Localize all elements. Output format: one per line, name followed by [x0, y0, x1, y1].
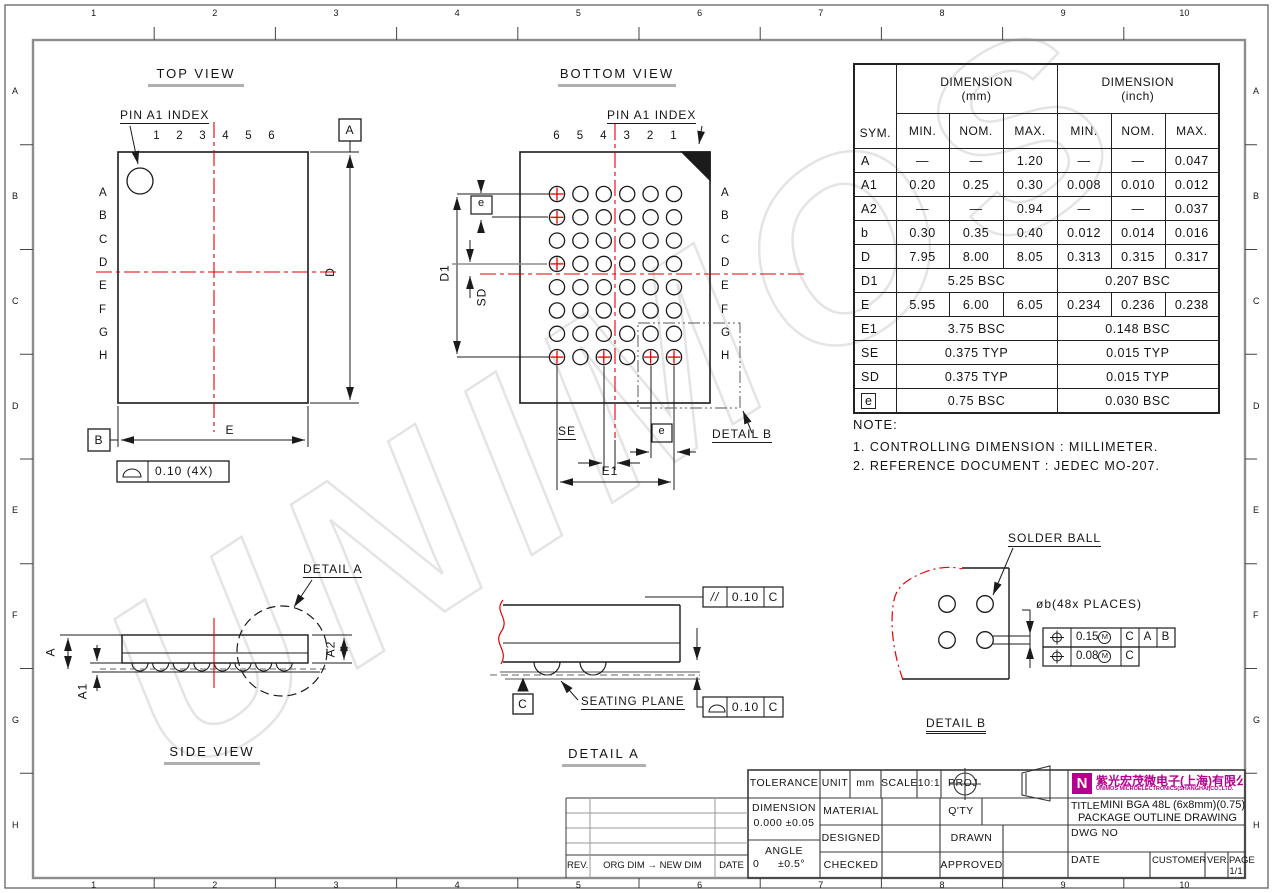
proj-label: PROJ: [948, 777, 978, 789]
parallelism-symbol: //: [703, 590, 727, 604]
bottom-view-row-letter: D: [721, 257, 730, 269]
inch-span-cell: 0.148 BSC: [1057, 317, 1219, 341]
inch-cell: 0.238: [1165, 293, 1219, 317]
bottom-view-column-number: 2: [646, 130, 656, 142]
unit-label: UNIT: [820, 777, 850, 789]
dim-d-label: D: [323, 267, 337, 277]
solder-ball: [596, 210, 611, 225]
dim-d1-label: D1: [438, 264, 452, 281]
col-header-inch: DIMENSION(inch): [1057, 64, 1219, 114]
inch-cell: 0.313: [1057, 245, 1111, 269]
zone-column-label: 5: [573, 8, 583, 18]
zone-column-label: 2: [210, 8, 220, 18]
inch-cell: 0.008: [1057, 173, 1111, 197]
page-value: 1/1: [1228, 866, 1244, 877]
dim-a1-label: A1: [75, 683, 89, 700]
zone-column-label: 8: [937, 8, 947, 18]
ball-position-cross: [551, 211, 564, 224]
side-view-title: SIDE VIEW: [164, 744, 260, 765]
mm-cell: 6.00: [949, 293, 1003, 317]
bottom-view-row-letter: A: [721, 187, 730, 199]
material-modifier-icon: M: [1098, 631, 1111, 644]
datum-c-triangle: [518, 679, 528, 691]
qty-label: Q'TY: [940, 805, 982, 817]
mm-cell: 5.95: [896, 293, 949, 317]
mm-span-cell: 0.375 TYP: [896, 341, 1057, 365]
mm-cell: —: [896, 149, 949, 173]
solder-ball: [620, 186, 635, 201]
dim-e-label: E: [205, 423, 255, 437]
dim-se-label: SE: [558, 424, 576, 440]
detail-b-callout-label: DETAIL B: [712, 427, 772, 443]
mm-cell: 0.35: [949, 221, 1003, 245]
sym-cell: A1: [854, 173, 896, 197]
table-row: D15.25 BSC0.207 BSC: [854, 269, 1219, 293]
zone-row-label: B: [1253, 191, 1259, 201]
designed-label: DESIGNED: [820, 832, 882, 844]
drawn-label: DRAWN: [940, 832, 1003, 844]
inch-cell: —: [1111, 197, 1165, 221]
dimension-label: DIMENSION: [748, 802, 820, 814]
zone-row-label: F: [1253, 610, 1259, 620]
top-view-row-letter: D: [99, 257, 108, 269]
angle-label: ANGLE: [748, 845, 820, 857]
dimension-table: SYM. DIMENSION(mm) DIMENSION(inch)MIN.NO…: [853, 63, 1220, 414]
bottom-view-pin-a1-label: PIN A1 INDEX: [607, 108, 696, 124]
drawing-title-line1: MINI BGA 48L (6x8mm)(0.75): [1100, 799, 1245, 811]
bottom-view-column-number: 6: [552, 130, 562, 142]
zone-column-label: 1: [89, 880, 99, 890]
inch-cell: 0.016: [1165, 221, 1219, 245]
solder-ball: [573, 210, 588, 225]
ball-diameter-note: øb(48x PLACES): [1036, 597, 1142, 611]
parallelism-tolerance: 0.10: [727, 590, 764, 604]
top-view-centerlines: [96, 122, 340, 432]
inch-cell: —: [1057, 149, 1111, 173]
mm-cell: 0.30: [1003, 173, 1057, 197]
table-row: E13.75 BSC0.148 BSC: [854, 317, 1219, 341]
dim-a-label: A: [44, 647, 58, 656]
zone-column-label: 6: [695, 880, 705, 890]
pin-a1-index-circle: [127, 168, 153, 194]
date-label: DATE: [1071, 854, 1100, 866]
zone-row-label: H: [12, 820, 19, 830]
col-subheader: MAX.: [1165, 114, 1219, 149]
flatness-value: 0.10 (4X): [155, 464, 213, 478]
fcf-datum: B: [1157, 631, 1175, 643]
company-name-en: UNIMOS MICROELECTRONICS(SHANGHAI)CO.,LTD…: [1096, 786, 1243, 792]
sym-cell: A2: [854, 197, 896, 221]
solder-ball: [573, 186, 588, 201]
fcf-row1-tolerance: 0.15M: [1076, 631, 1111, 644]
bottom-view-column-number: 4: [599, 130, 609, 142]
zone-column-label: 7: [816, 8, 826, 18]
zone-row-label: B: [12, 191, 18, 201]
title-label: TITLE: [1071, 800, 1100, 812]
sym-cell: D1: [854, 269, 896, 293]
table-row: SE0.375 TYP0.015 TYP: [854, 341, 1219, 365]
fcf-tol-value: 0.15: [1076, 631, 1098, 643]
fcf-datum: A: [1139, 631, 1157, 643]
inch-cell: 0.047: [1165, 149, 1219, 173]
sym-cell: E1: [854, 317, 896, 341]
dwg-no-label: DWG NO: [1071, 827, 1118, 839]
table-row: A2——0.94——0.037: [854, 197, 1219, 221]
mm-cell: 7.95: [896, 245, 949, 269]
mm-span-cell: 0.375 TYP: [896, 365, 1057, 389]
fcf-datum: C: [1121, 631, 1139, 643]
zone-column-label: 9: [1058, 880, 1068, 890]
inch-cell: 0.037: [1165, 197, 1219, 221]
zone-column-label: 3: [331, 880, 341, 890]
zone-column-label: 10: [1179, 880, 1189, 890]
break-boundary: [892, 567, 962, 680]
mm-cell: 8.00: [949, 245, 1003, 269]
zone-column-label: 2: [210, 880, 220, 890]
detail-b-body: [892, 567, 1009, 680]
zone-row-label: C: [1253, 296, 1260, 306]
profile-symbol-icon: [123, 469, 141, 477]
mm-cell: —: [896, 197, 949, 221]
zone-row-label: D: [12, 401, 19, 411]
zone-row-label: D: [1253, 401, 1260, 411]
mm-span-cell: 5.25 BSC: [896, 269, 1057, 293]
mm-cell: —: [949, 149, 1003, 173]
mm-cell: 0.30: [896, 221, 949, 245]
col-subheader: MIN.: [1057, 114, 1111, 149]
col-subheader: NOM.: [1111, 114, 1165, 149]
top-view-column-number: 4: [221, 130, 231, 142]
ver-label: VER.: [1207, 855, 1229, 866]
zone-column-label: 9: [1058, 8, 1068, 18]
dimension-tolerance: 0.000 ±0.05: [748, 817, 820, 829]
mm-cell: —: [949, 197, 1003, 221]
mm-cell: 8.05: [1003, 245, 1057, 269]
table-row: SD0.375 TYP0.015 TYP: [854, 365, 1219, 389]
mm-cell: 6.05: [1003, 293, 1057, 317]
zone-row-label: E: [1253, 505, 1259, 515]
col-subheader: MIN.: [896, 114, 949, 149]
bottom-view-row-letter: E: [721, 280, 730, 292]
table-row: D7.958.008.050.3130.3150.317: [854, 245, 1219, 269]
note-item: 2. REFERENCE DOCUMENT : JEDEC MO-207.: [853, 459, 1160, 473]
checked-label: CHECKED: [820, 859, 882, 871]
drawing-sheet: UNIMOS: [0, 0, 1273, 893]
top-view-row-letter: B: [99, 210, 108, 222]
inch-span-cell: 0.030 BSC: [1057, 389, 1219, 414]
table-row: A10.200.250.300.0080.0100.012: [854, 173, 1219, 197]
parallelism-datum: C: [764, 590, 783, 604]
page-label: PAGE: [1229, 855, 1255, 866]
approved-label: APPROVED: [940, 859, 1003, 871]
material-label: MATERIAL: [820, 805, 882, 817]
seating-plane-label: SEATING PLANE: [581, 696, 685, 710]
inch-cell: 0.012: [1165, 173, 1219, 197]
profile-symbol-icon: [709, 705, 725, 712]
pitch-e-label-bottom: e: [652, 425, 672, 437]
bottom-view-column-number: 5: [575, 130, 585, 142]
material-modifier-icon: M: [1098, 650, 1111, 663]
fcf-tol-value: 0.08: [1076, 650, 1098, 662]
bottom-view-row-letter: H: [721, 350, 730, 362]
zone-row-label: G: [12, 715, 19, 725]
top-view-row-letter: H: [99, 350, 108, 362]
zone-column-label: 8: [937, 880, 947, 890]
col-subheader: MAX.: [1003, 114, 1057, 149]
mm-span-cell: 3.75 BSC: [896, 317, 1057, 341]
top-view-row-letter: E: [99, 280, 108, 292]
bottom-view-row-letter: F: [721, 304, 729, 316]
zone-column-label: 10: [1179, 8, 1189, 18]
solder-ball: [596, 186, 611, 201]
zone-column-label: 5: [573, 880, 583, 890]
zone-column-label: 4: [452, 8, 462, 18]
sym-cell: SD: [854, 365, 896, 389]
inch-span-cell: 0.015 TYP: [1057, 341, 1219, 365]
zone-row-label: C: [12, 296, 19, 306]
zone-row-label: H: [1253, 820, 1260, 830]
sym-cell: D: [854, 245, 896, 269]
solder-ball: [549, 186, 564, 201]
pitch-e-label-left: e: [471, 197, 492, 209]
bottom-view-column-number: 1: [669, 130, 679, 142]
flatness-tolerance: 0.10: [727, 700, 764, 714]
dim-e1-label: E1: [595, 464, 625, 478]
top-view-body: [118, 152, 308, 403]
sym-cell: A: [854, 149, 896, 173]
top-view-title: TOP VIEW: [148, 66, 244, 87]
angle-zero: 0: [753, 858, 759, 870]
company-logo-icon: N: [1072, 773, 1092, 794]
zone-row-label: F: [12, 610, 18, 620]
zone-column-label: 6: [695, 8, 705, 18]
dim-sd-label: SD: [474, 288, 488, 307]
col-header-mm: DIMENSION(mm): [896, 64, 1057, 114]
mm-span-cell: 0.75 BSC: [896, 389, 1057, 414]
zone-row-label: E: [12, 505, 18, 515]
table-subheader-row: MIN.NOM.MAX.MIN.NOM.MAX.: [854, 114, 1219, 149]
customer-label: CUSTOMER: [1152, 855, 1206, 866]
top-view-pin-a1-label: PIN A1 INDEX: [120, 108, 209, 124]
top-view-column-number: 3: [198, 130, 208, 142]
col-subheader: NOM.: [949, 114, 1003, 149]
tolerance-label: TOLERANCE: [748, 777, 820, 789]
rev-change-label: ORG DIM → NEW DIM: [590, 860, 715, 871]
ball-position-cross: [551, 188, 564, 201]
zone-row-label: A: [12, 86, 18, 96]
bottom-view-row-letter: C: [721, 234, 730, 246]
top-view-column-number: 2: [175, 130, 185, 142]
note-item: 1. CONTROLLING DIMENSION : MILLIMETER.: [853, 440, 1158, 454]
flatness-datum: C: [764, 700, 783, 714]
scale-label: SCALE: [881, 777, 917, 789]
detail-a-callout-label: DETAIL A: [303, 562, 362, 578]
detail-b-balls: [939, 596, 994, 649]
solder-ball-label: SOLDER BALL: [1008, 531, 1101, 547]
top-view-row-letter: G: [99, 327, 109, 339]
table-row: e0.75 BSC0.030 BSC: [854, 389, 1219, 414]
inch-cell: —: [1111, 149, 1165, 173]
datum-c-label: C: [513, 697, 533, 711]
solder-ball: [549, 210, 564, 225]
zone-column-label: 4: [452, 880, 462, 890]
top-view-column-number: 5: [244, 130, 254, 142]
datum-b-label: B: [88, 433, 110, 447]
notes-heading: NOTE:: [853, 417, 898, 432]
mm-cell: 1.20: [1003, 149, 1057, 173]
zone-column-label: 1: [89, 8, 99, 18]
detail-a-title: DETAIL A: [562, 746, 646, 767]
scale-value: 10:1: [917, 777, 941, 789]
sym-cell: e: [854, 389, 896, 414]
angle-tolerance: ±0.5°: [778, 858, 805, 870]
col-header-sym: SYM.: [854, 64, 896, 149]
zone-column-label: 7: [816, 880, 826, 890]
rev-date-label: DATE: [715, 860, 748, 871]
fcf-row2-tolerance: 0.08M: [1076, 650, 1111, 663]
bottom-view-title: BOTTOM VIEW: [558, 66, 676, 87]
inch-cell: —: [1057, 197, 1111, 221]
inch-cell: 0.014: [1111, 221, 1165, 245]
inch-cell: 0.317: [1165, 245, 1219, 269]
detail-b-title: DETAIL B: [926, 716, 986, 734]
top-view-row-letter: F: [99, 304, 107, 316]
inch-cell: 0.315: [1111, 245, 1165, 269]
inch-cell: 0.236: [1111, 293, 1165, 317]
mm-cell: 0.25: [949, 173, 1003, 197]
zone-row-label: G: [1253, 715, 1260, 725]
top-view-column-number: 1: [152, 130, 162, 142]
bottom-view-column-number: 3: [622, 130, 632, 142]
inch-cell: 0.012: [1057, 221, 1111, 245]
drawing-title-line2: PACKAGE OUTLINE DRAWING: [1075, 812, 1240, 824]
top-view-row-letter: A: [99, 187, 108, 199]
position-tolerance-icon: [1050, 631, 1064, 664]
inch-span-cell: 0.015 TYP: [1057, 365, 1219, 389]
unit-value: mm: [850, 777, 881, 789]
table-row: E5.956.006.050.2340.2360.238: [854, 293, 1219, 317]
sym-cell: SE: [854, 341, 896, 365]
top-view-column-number: 6: [267, 130, 277, 142]
mm-cell: 0.20: [896, 173, 949, 197]
sym-cell: b: [854, 221, 896, 245]
table-header-row: SYM. DIMENSION(mm) DIMENSION(inch): [854, 64, 1219, 114]
table-row: A——1.20——0.047: [854, 149, 1219, 173]
inch-cell: 0.010: [1111, 173, 1165, 197]
sym-cell: E: [854, 293, 896, 317]
bottom-view-row-letter: B: [721, 210, 730, 222]
top-view-row-letter: C: [99, 234, 108, 246]
dim-a2-label: A2: [323, 641, 337, 658]
rev-label: REV.: [567, 860, 588, 871]
bottom-view-row-letter: G: [721, 327, 731, 339]
solder-ball: [549, 233, 564, 248]
zone-row-label: A: [1253, 86, 1259, 96]
mm-cell: 0.94: [1003, 197, 1057, 221]
datum-a-label: A: [339, 123, 361, 137]
fcf-datum: C: [1121, 650, 1139, 662]
table-row: b0.300.350.400.0120.0140.016: [854, 221, 1219, 245]
inch-cell: 0.234: [1057, 293, 1111, 317]
mm-cell: 0.40: [1003, 221, 1057, 245]
inch-span-cell: 0.207 BSC: [1057, 269, 1219, 293]
zone-column-label: 3: [331, 8, 341, 18]
